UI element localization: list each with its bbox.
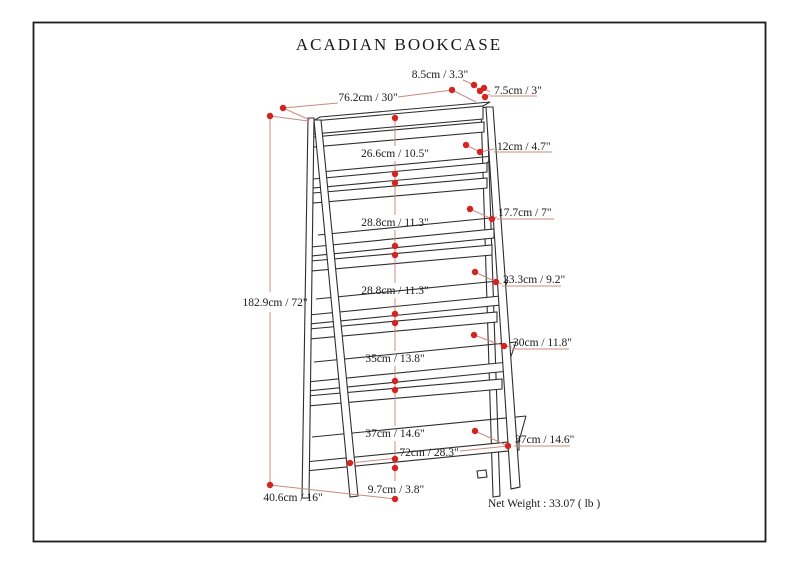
dim-base-depth: 40.6cm / 16" — [263, 492, 322, 504]
technical-drawing-page: ACADIAN BOOKCASE — [0, 0, 800, 566]
dim-shelf-depth-1: 12cm / 4.7" — [497, 141, 551, 153]
dim-floor-clearance: 9.7cm / 3.8" — [368, 484, 424, 496]
page-border — [34, 23, 766, 542]
dim-shelf-spacing-4: 35cm / 13.8" — [365, 353, 424, 365]
bookcase-dimension-diagram: ACADIAN BOOKCASE — [0, 0, 800, 566]
dim-total-height: 182.9cm / 72" — [242, 297, 307, 309]
dim-shelf-depth-3: 23.3cm / 9.2" — [503, 274, 565, 286]
dim-shelf-depth-4: 30cm / 11.8" — [513, 337, 572, 349]
dim-shelf-spacing-3: 28.8cm / 11.3" — [361, 285, 429, 297]
dim-shelf-spacing-1: 26.6cm / 10.5" — [361, 148, 429, 160]
dim-shelf-spacing-5: 37cm / 14.6" — [365, 428, 424, 440]
dim-shelf-spacing-2: 28.8cm / 11.3" — [361, 217, 429, 229]
dim-shelf-depth-2: 17.7cm / 7" — [498, 207, 552, 219]
dim-top-rail-height: 8.5cm / 3.3" — [412, 69, 468, 81]
net-weight-label: Net Weight : 33.07 ( lb ) — [488, 498, 600, 510]
shelf-foot — [477, 470, 487, 478]
dim-bottom-width: 72cm / 28.3" — [399, 447, 458, 459]
diagram-title: ACADIAN BOOKCASE — [296, 35, 502, 54]
dim-top-width: 76.2cm / 30" — [338, 92, 397, 104]
dim-frame-thickness: 7.5cm / 3" — [494, 85, 542, 97]
dim-shelf-depth-5: 37cm / 14.6" — [515, 434, 574, 446]
